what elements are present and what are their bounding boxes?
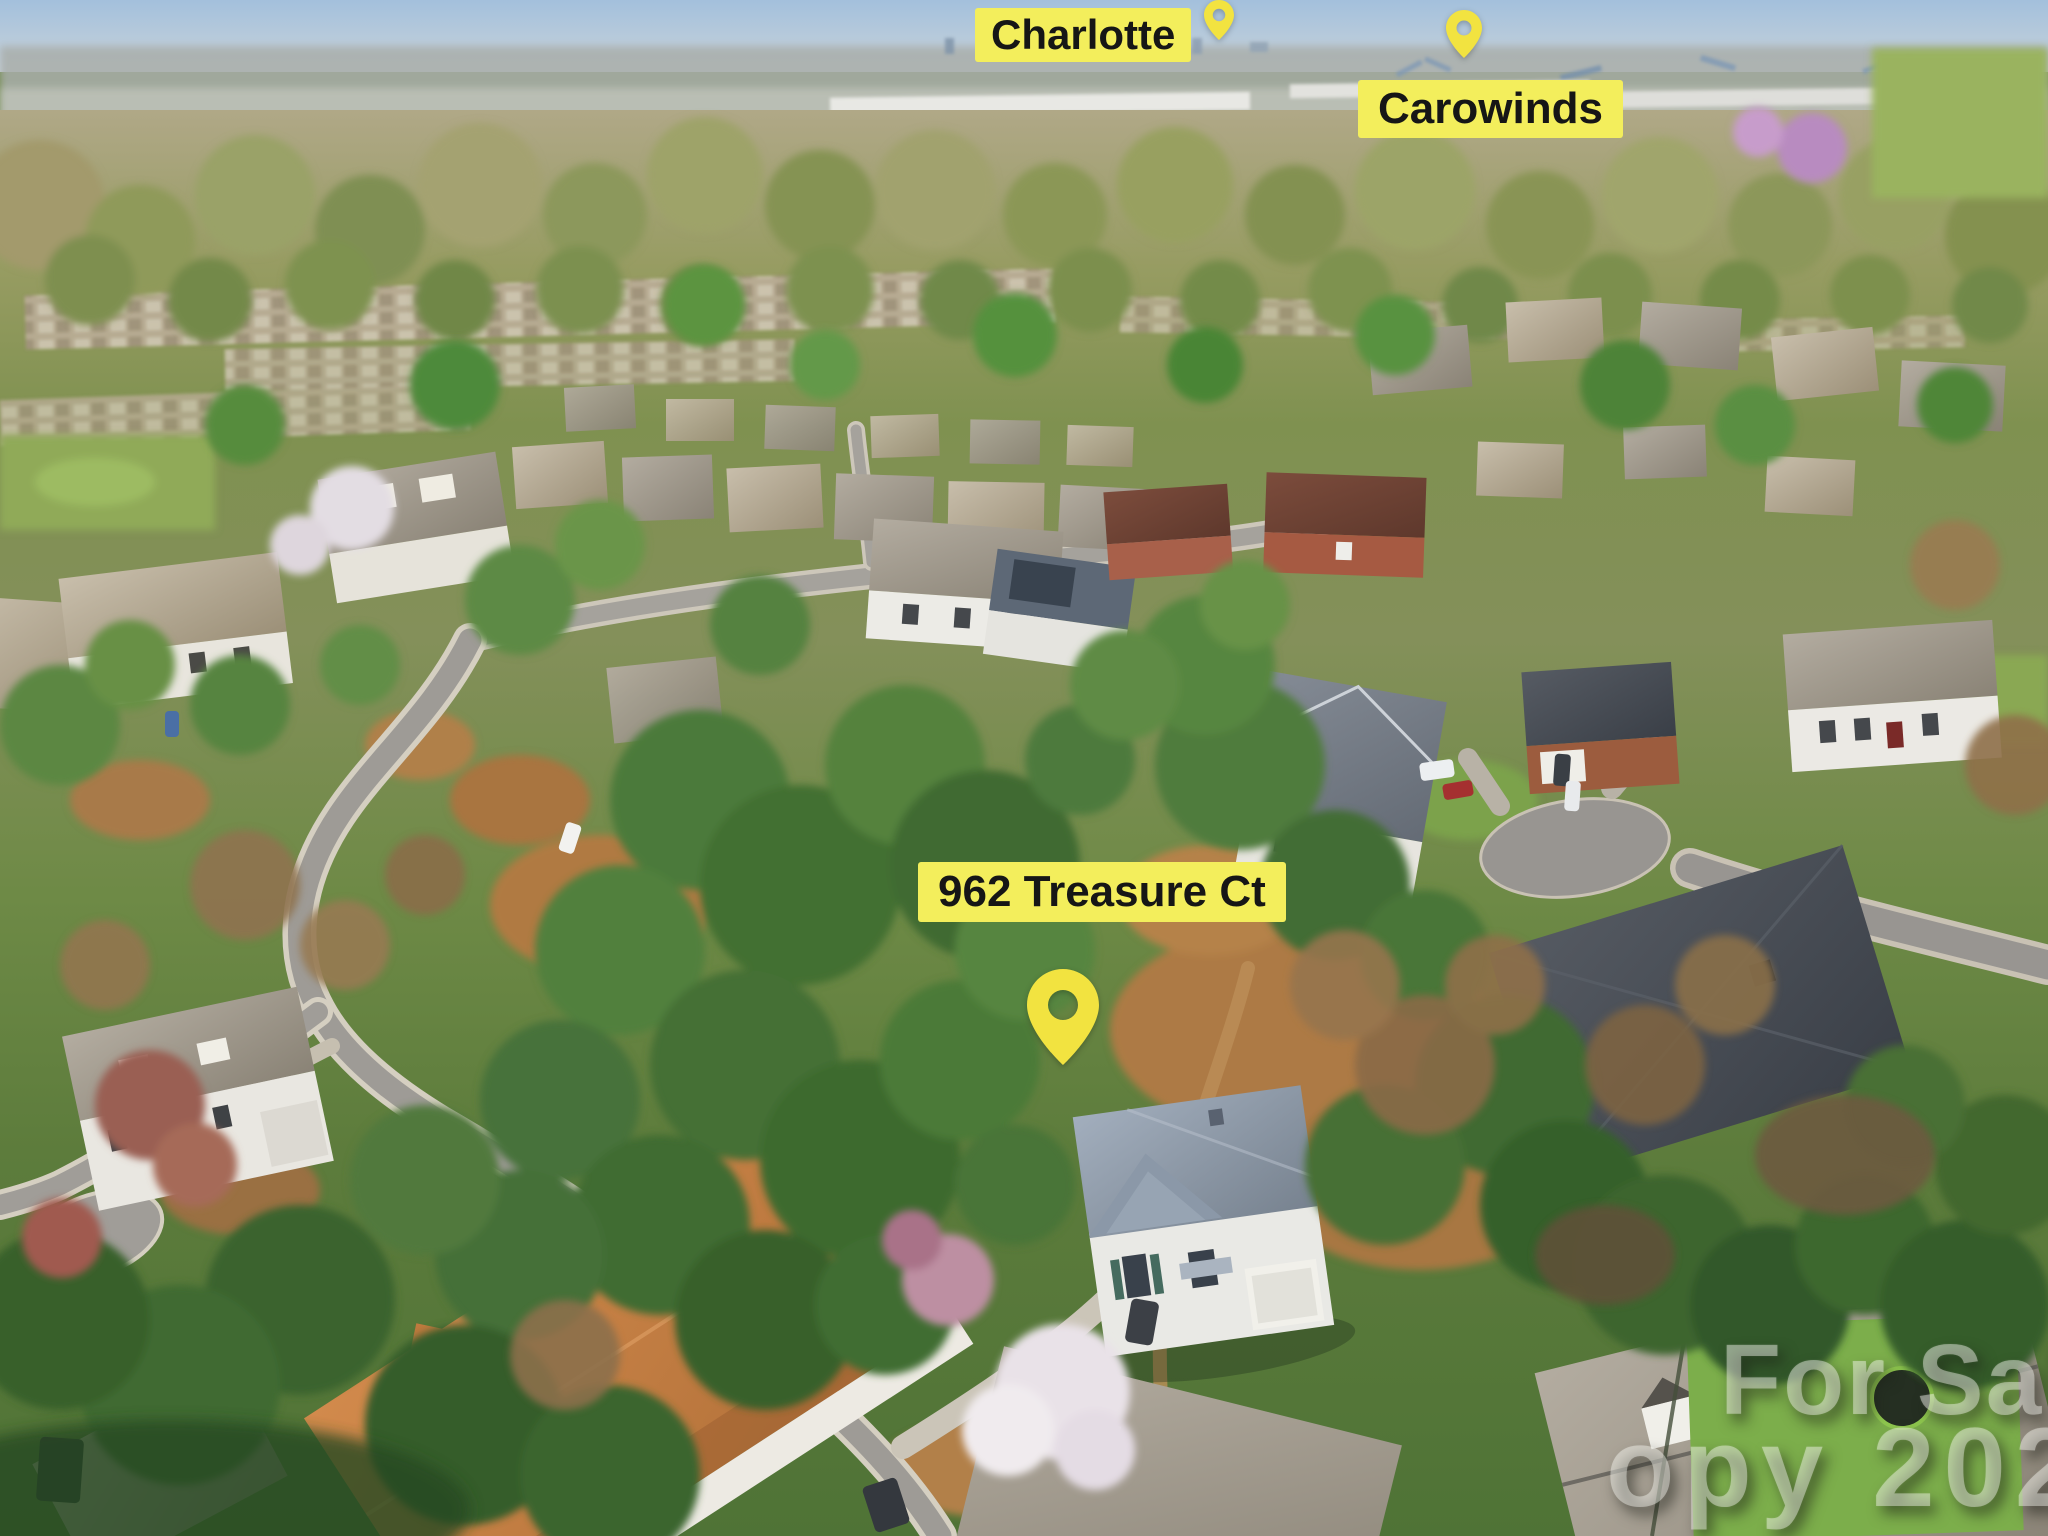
house	[970, 419, 1041, 464]
charlotte-map-pin-icon	[1204, 0, 1234, 40]
house	[870, 414, 939, 458]
house	[1476, 442, 1564, 499]
house	[1521, 662, 1679, 794]
house	[666, 399, 734, 441]
car	[1564, 781, 1581, 812]
house	[1066, 425, 1133, 467]
house	[512, 441, 608, 509]
house	[1505, 298, 1604, 363]
house	[764, 405, 835, 451]
watermark-canopy-year: opy 2023	[1606, 1412, 2048, 1524]
house	[1263, 472, 1426, 578]
car	[165, 711, 179, 737]
house	[1771, 327, 1879, 401]
house	[622, 454, 714, 521]
house	[1765, 456, 1856, 517]
house	[1103, 484, 1233, 580]
property-address-label: 962 Treasure Ct	[918, 862, 1286, 922]
aerial-scene	[0, 0, 2048, 1536]
charlotte-label: Charlotte	[975, 8, 1191, 62]
house	[726, 464, 823, 533]
house	[1623, 425, 1707, 480]
carowinds-map-pin-icon	[1446, 10, 1482, 58]
aerial-photo: Charlotte Carowinds 962 Treasure Ct For …	[0, 0, 2048, 1536]
carowinds-label: Carowinds	[1358, 80, 1623, 138]
house	[564, 384, 636, 432]
property-map-pin-icon	[1027, 966, 1099, 1068]
